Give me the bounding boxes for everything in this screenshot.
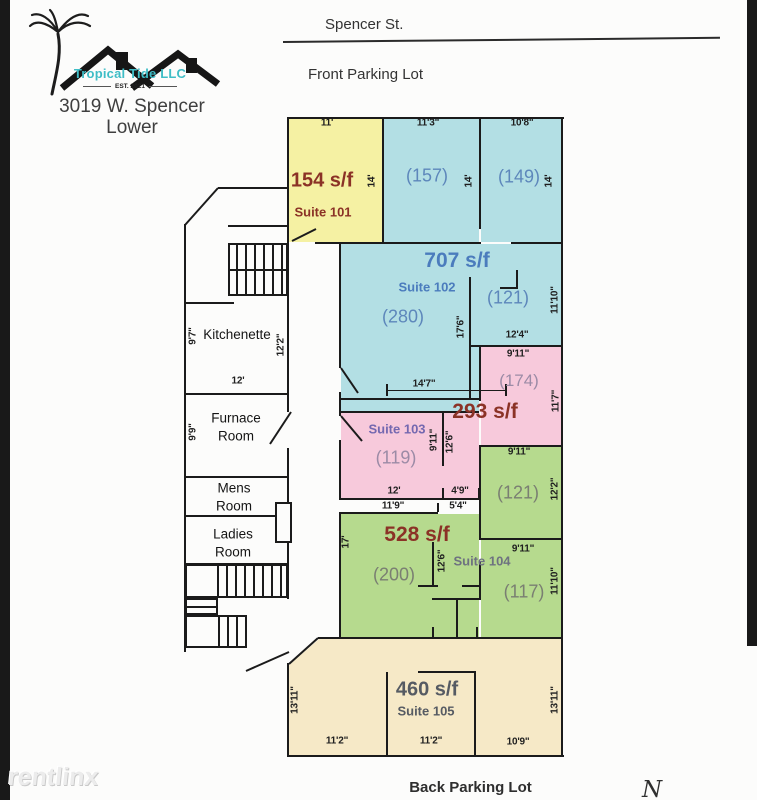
rentlinx-watermark: rentlinx (6, 763, 99, 792)
suite-104-room-121-floor (481, 447, 561, 637)
back-parking-label: Back Parking Lot (398, 779, 543, 796)
wall (478, 488, 480, 498)
dim-label: 11'10" (550, 567, 561, 595)
suite-104-area-200: (200) (373, 565, 415, 586)
wall (339, 244, 341, 368)
dim-label: 9'11" (512, 544, 534, 555)
dim-label: 12'2" (276, 334, 287, 357)
wall (474, 671, 476, 756)
restroom-alcove (275, 502, 292, 543)
wall (339, 512, 438, 514)
suite-103-name: Suite 103 (368, 422, 425, 437)
dim-label: 12' (388, 486, 401, 497)
room-kitchenette: Kitchenette (203, 326, 271, 344)
address-line1: 3019 W. Spencer (48, 96, 216, 117)
logo-established: EST. 2021 (70, 83, 190, 90)
dim-label: 17'6" (456, 316, 467, 339)
dim-label: 10'9" (507, 737, 530, 748)
dim-label: 9'11" (429, 429, 440, 451)
wall (387, 390, 506, 391)
wall (287, 755, 564, 757)
wall (432, 627, 434, 637)
dim-label: 11'2" (326, 736, 348, 747)
wall (432, 542, 434, 586)
suite-104-area-121: (121) (497, 483, 539, 504)
dim-label: 13'11" (550, 686, 561, 714)
scan-bar-left (0, 0, 10, 800)
stairs-lower-landing (185, 598, 218, 615)
wall (382, 117, 384, 244)
dim-label: 11'10" (550, 286, 561, 314)
suite-103-area-174: (174) (499, 371, 539, 391)
floor-plan-page: Tropical Tide LLC EST. 2021 3019 W. Spen… (0, 0, 757, 800)
wall (561, 117, 563, 757)
angled-wall-line (185, 188, 218, 225)
suite-104-area-117: (117) (504, 582, 545, 603)
wall (318, 637, 563, 639)
compass-north-icon: N (642, 777, 662, 800)
address-line2: Lower (48, 117, 216, 138)
suite-103-room-174-floor (481, 347, 561, 445)
wall (437, 503, 439, 512)
wall (470, 345, 562, 347)
door-swing-suite105 (246, 652, 289, 671)
street-line (283, 37, 720, 43)
wall (511, 242, 563, 244)
wall (479, 117, 481, 229)
dim-label: 9'9" (188, 423, 199, 440)
dim-label: 9'7" (188, 327, 199, 344)
room-furnace: Furnace Room (205, 409, 267, 444)
wall (386, 384, 388, 396)
property-address: 3019 W. Spencer Lower (48, 96, 216, 139)
stairs-lower-run1 (185, 564, 288, 598)
dim-label: 12'6" (437, 550, 448, 573)
suite-102-area-157: (157) (406, 166, 448, 187)
dim-label: 12'4" (506, 330, 529, 341)
dim-label: 11'2" (420, 736, 442, 747)
wall (418, 671, 476, 673)
wall (184, 393, 289, 395)
wall (184, 476, 289, 478)
dim-label: 10'8" (511, 118, 534, 129)
wall (184, 302, 234, 304)
dim-label: 9'11" (507, 349, 529, 360)
wall (287, 448, 289, 503)
suite-102-area-121: (121) (487, 288, 529, 309)
front-parking-label: Front Parking Lot (308, 66, 423, 83)
suite-104-sqft: 528 s/f (384, 523, 449, 547)
dim-label: 14' (544, 175, 555, 188)
suite-102-name: Suite 102 (398, 280, 455, 295)
suite-101-sqft: 154 s/f (291, 170, 353, 193)
suite-105-name: Suite 105 (397, 704, 454, 719)
door-leaf-furnace (270, 412, 291, 444)
street-label: Spencer St. (325, 16, 403, 33)
dim-label: 14' (464, 175, 475, 188)
wall (184, 515, 277, 517)
logo-est-text: EST. 2021 (115, 83, 145, 90)
suite-101-name: Suite 101 (294, 205, 351, 220)
dim-label: 11'3" (417, 118, 439, 129)
dim-label: 17' (341, 536, 352, 549)
stairs-lower-run2 (185, 615, 247, 648)
suite-104-name: Suite 104 (453, 554, 510, 569)
wall (462, 585, 480, 587)
dim-label: 12'6" (445, 431, 456, 454)
wall (469, 277, 471, 399)
stairs-upper (228, 243, 288, 296)
room-ladies: Ladies Room (208, 525, 258, 560)
dim-label: 14'7" (413, 379, 436, 390)
suite-103-area-119: (119) (376, 448, 417, 469)
scan-bar-right (747, 0, 757, 646)
dim-label: 9'11" (508, 447, 530, 458)
suite-103-sqft: 293 s/f (452, 400, 517, 424)
dim-label: 14' (367, 175, 378, 188)
room-mens: Mens Room (209, 479, 259, 514)
dim-label: 11' (321, 118, 333, 129)
dim-label: 12'2" (550, 478, 561, 501)
dim-label: 5'4" (449, 501, 466, 512)
wall (339, 512, 341, 638)
suite-105-sqft: 460 s/f (396, 679, 458, 702)
wall (418, 585, 438, 587)
wall (386, 672, 388, 756)
dim-label: 11'7" (551, 390, 562, 412)
wall (476, 627, 478, 637)
wall (479, 345, 481, 401)
logo-company-name: Tropical Tide LLC (70, 66, 190, 81)
wall (228, 225, 288, 227)
dim-label: 11'9" (382, 501, 404, 512)
wall (339, 440, 341, 499)
suite-102-area-149: (149) (498, 167, 540, 188)
wall (218, 187, 287, 189)
dim-label: 4'9" (451, 486, 468, 497)
dim-label: 12' (232, 376, 245, 387)
suite-102-sqft: 707 s/f (424, 249, 489, 273)
dim-label: 13'11" (290, 686, 301, 714)
wall (456, 598, 458, 638)
wall (442, 488, 444, 498)
wall (479, 538, 563, 540)
suite-102-area-280: (280) (382, 307, 424, 328)
